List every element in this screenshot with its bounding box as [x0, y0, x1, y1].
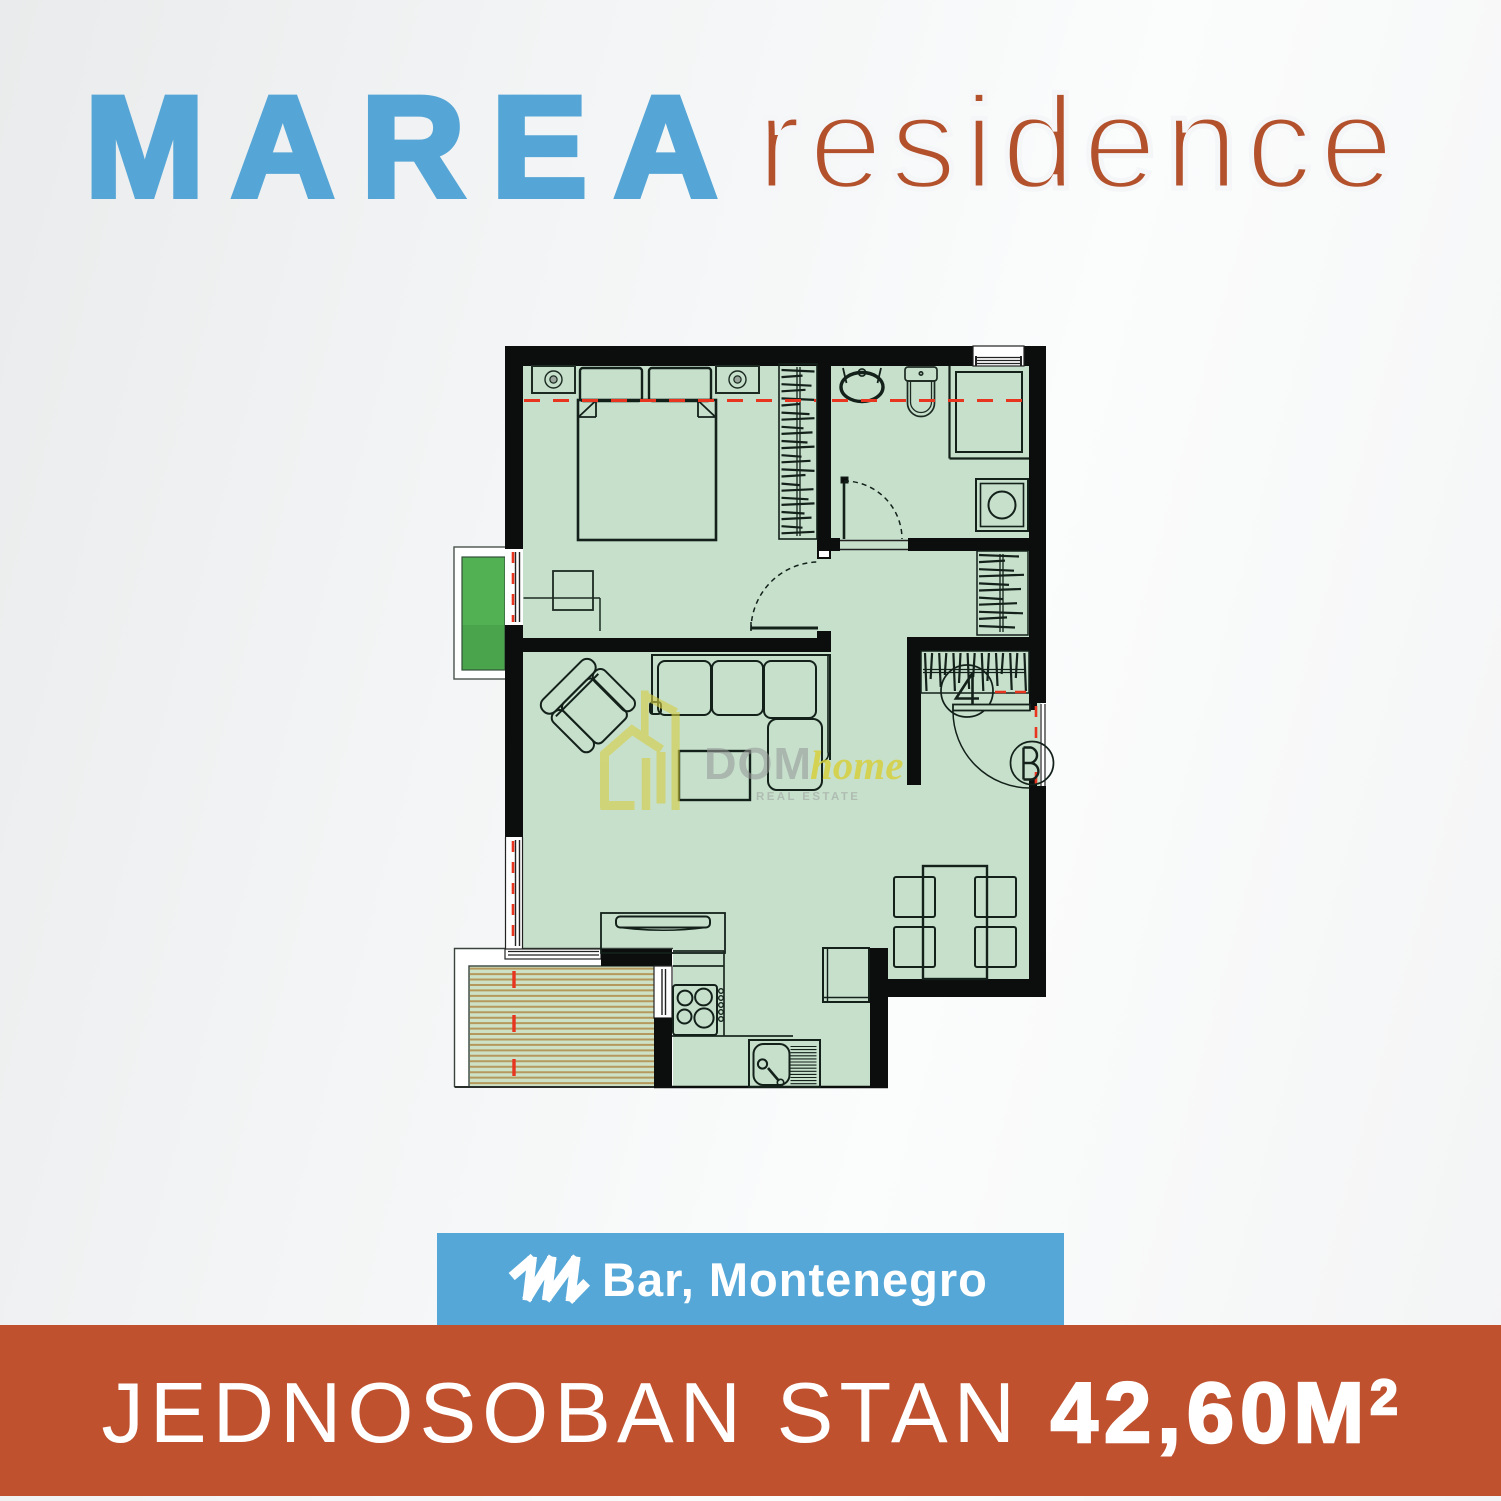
- svg-text:DOM: DOM: [704, 738, 812, 789]
- svg-text:REAL ESTATE: REAL ESTATE: [756, 791, 860, 803]
- svg-text:home: home: [810, 742, 903, 788]
